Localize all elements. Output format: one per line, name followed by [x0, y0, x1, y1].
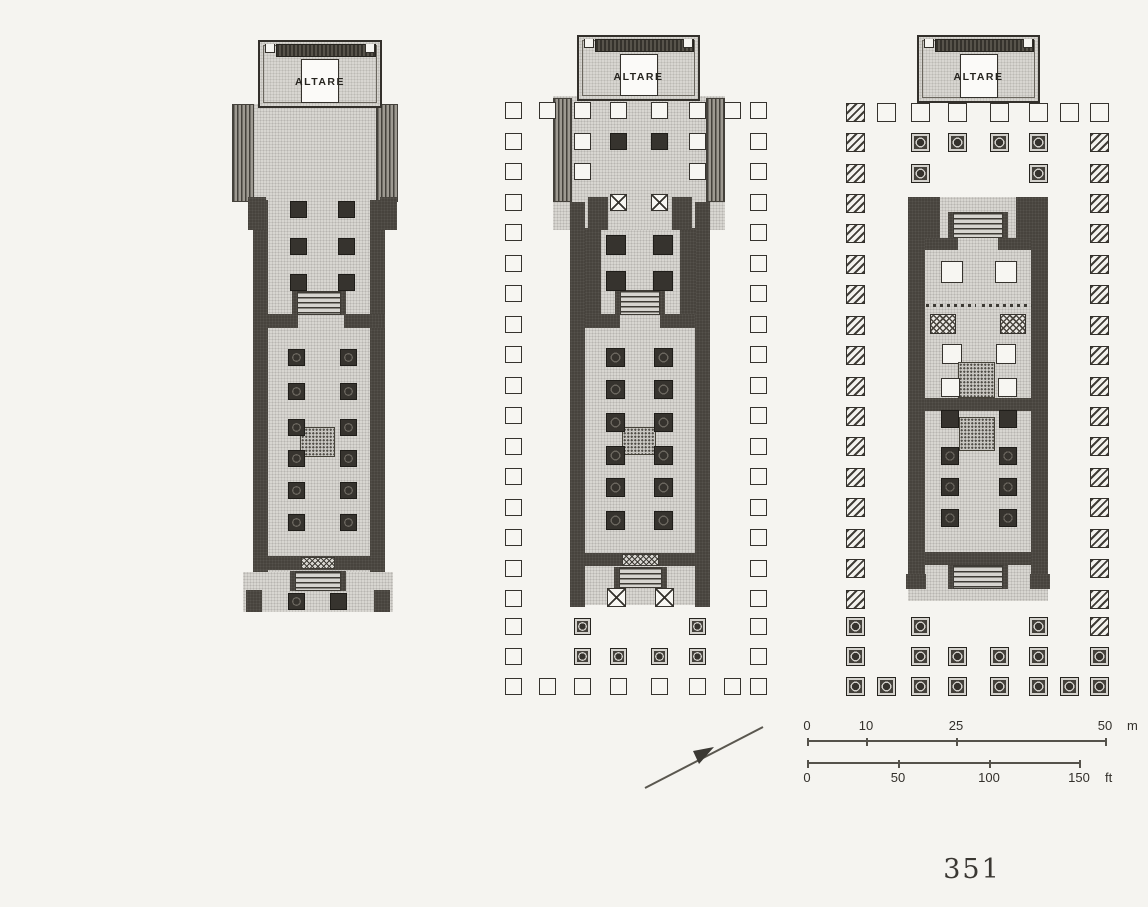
column-dark-circled: [654, 478, 673, 497]
temple-wall: [1030, 574, 1050, 589]
column-dark-circled: [340, 349, 357, 366]
altar-hatched-band: [276, 44, 376, 57]
peristyle-column-circled: [948, 677, 967, 696]
temple-floor: [232, 104, 398, 202]
peristyle-column-circled: [689, 648, 706, 665]
column-dark-circled: [340, 383, 357, 400]
peristyle-column-hatched: [1090, 224, 1109, 243]
peristyle-column-circled: [911, 647, 930, 666]
scale-meters-tick-label: 10: [859, 718, 873, 733]
temple-wall: [344, 314, 385, 328]
column-dark-circled: [340, 419, 357, 436]
altar-notch: [584, 39, 594, 48]
column-dark-circled: [340, 514, 357, 531]
temple-wall: [672, 197, 692, 230]
column-dark-circled: [999, 478, 1017, 496]
peristyle-column-circled: [689, 618, 706, 635]
peristyle-column-hatched: [846, 285, 865, 304]
column-open: [990, 103, 1009, 122]
altar-notch: [265, 44, 275, 53]
column-open: [505, 560, 522, 577]
column-dark-circled: [288, 383, 305, 400]
column-open: [689, 678, 706, 695]
column-x: [651, 194, 668, 211]
column-open: [1029, 103, 1048, 122]
peristyle-column-circled: [990, 133, 1009, 152]
peristyle-column-circled: [1029, 164, 1048, 183]
temple-wall: [248, 197, 266, 230]
peristyle-column-hatched: [1090, 529, 1109, 548]
altar: ALTARE: [577, 35, 700, 101]
altar-label: ALTARE: [919, 70, 1038, 85]
column-dark-circled: [340, 482, 357, 499]
scale-meters-tick: [866, 738, 868, 746]
peristyle-column-hatched: [846, 498, 865, 517]
peristyle-column-hatched: [846, 559, 865, 578]
column-open: [574, 102, 591, 119]
column-dark-circled: [288, 450, 305, 467]
column-open: [750, 529, 767, 546]
temple-wall: [908, 197, 940, 239]
peristyle-column-circled: [990, 647, 1009, 666]
scale-feet-tick: [989, 760, 991, 768]
temple-wall: [370, 200, 385, 572]
column-dark-circled: [654, 511, 673, 530]
column-dark: [290, 274, 307, 291]
column-open: [505, 194, 522, 211]
peristyle-column-hatched: [1090, 164, 1109, 183]
peristyle-column-circled: [1060, 677, 1079, 696]
stairs: [619, 567, 662, 588]
peristyle-column-circled: [1029, 647, 1048, 666]
scale-meters-tick-label: 25: [949, 718, 963, 733]
peristyle-column-hatched: [846, 133, 865, 152]
column-dark-circled: [606, 413, 625, 432]
temple-wall: [1003, 212, 1008, 238]
peristyle-column-hatched: [1090, 407, 1109, 426]
column-dark: [290, 201, 307, 218]
column-open: [505, 590, 522, 607]
column-open: [750, 648, 767, 665]
column-open: [505, 133, 522, 150]
column-open: [505, 102, 522, 119]
scale-meters-tick-label: 50: [1098, 718, 1112, 733]
column-open: [505, 346, 522, 363]
altar: ALTARE: [258, 40, 382, 108]
column-dark: [606, 271, 626, 291]
column-open: [610, 102, 627, 119]
column-open: [750, 560, 767, 577]
dashed-line: [982, 304, 1032, 307]
column-dark-circled: [288, 349, 305, 366]
temple-wall: [948, 565, 953, 589]
temple-wall: [695, 202, 710, 607]
column-open: [750, 316, 767, 333]
peristyle-column-circled: [990, 677, 1009, 696]
scale-feet-tick: [898, 760, 900, 768]
column-open: [539, 678, 556, 695]
column-dark-circled: [340, 450, 357, 467]
temple-wall: [585, 228, 601, 314]
temple-wall: [948, 212, 953, 238]
peristyle-column-circled: [610, 648, 627, 665]
column-crosshatched: [930, 314, 956, 334]
column-open: [1060, 103, 1079, 122]
peristyle-column-hatched: [1090, 316, 1109, 335]
peristyle-column-circled: [911, 677, 930, 696]
peristyle-column-hatched: [1090, 590, 1109, 609]
column-dark-circled: [288, 419, 305, 436]
temple-wall: [1031, 197, 1048, 587]
temple-wall: [246, 590, 262, 612]
peristyle-column-hatched: [846, 437, 865, 456]
scale-meters-tick: [807, 738, 809, 746]
hearth: [958, 362, 995, 398]
peristyle-column-circled: [574, 618, 591, 635]
column-dark: [610, 133, 627, 150]
column-crosshatched: [1000, 314, 1026, 334]
column-open: [877, 103, 896, 122]
column-open: [750, 499, 767, 516]
column-dark-circled: [606, 511, 625, 530]
column-open: [574, 678, 591, 695]
column-dark-circled: [941, 509, 959, 527]
column-open: [942, 344, 962, 364]
scale-feet-line: [807, 762, 1079, 764]
column-open: [996, 344, 1016, 364]
column-open: [689, 163, 706, 180]
peristyle-column-circled: [1090, 647, 1109, 666]
peristyle-column-circled: [948, 133, 967, 152]
column-open: [505, 618, 522, 635]
altar: ALTARE: [917, 35, 1040, 103]
column-dark-circled: [288, 514, 305, 531]
hearth: [300, 427, 335, 457]
peristyle-column-circled: [1090, 677, 1109, 696]
dashed-line: [926, 304, 976, 307]
peristyle-column-circled: [1029, 677, 1048, 696]
peristyle-column-hatched: [1090, 559, 1109, 578]
column-dark-circled: [288, 482, 305, 499]
column-dark-circled: [606, 380, 625, 399]
temple-wall: [570, 202, 585, 607]
column-open: [505, 163, 522, 180]
column-dark-circled: [606, 478, 625, 497]
column-open: [995, 261, 1017, 283]
column-open: [941, 378, 960, 397]
column-dark-circled: [606, 446, 625, 465]
stairs: [620, 290, 660, 315]
peristyle-column-circled: [911, 617, 930, 636]
column-open: [750, 678, 767, 695]
peristyle-column-hatched: [846, 194, 865, 213]
column-x: [655, 588, 674, 607]
peristyle-column-hatched: [846, 316, 865, 335]
peristyle-column-hatched: [1090, 468, 1109, 487]
temple-wall: [374, 590, 390, 612]
peristyle-column-hatched: [846, 164, 865, 183]
scale-feet-tick: [807, 760, 809, 768]
temple-wall: [292, 291, 297, 315]
column-open: [574, 163, 591, 180]
peristyle-column-circled: [651, 648, 668, 665]
peristyle-column-circled: [948, 647, 967, 666]
column-open: [948, 103, 967, 122]
column-open: [750, 407, 767, 424]
column-open: [750, 255, 767, 272]
column-dark: [653, 235, 673, 255]
scale-meters-unit-label: m: [1127, 718, 1138, 733]
column-open: [750, 224, 767, 241]
peristyle-column-hatched: [1090, 437, 1109, 456]
column-open: [505, 224, 522, 241]
column-open: [750, 590, 767, 607]
temple-floor: [253, 200, 385, 572]
column-dark: [338, 274, 355, 291]
column-open: [505, 316, 522, 333]
column-open: [610, 678, 627, 695]
column-open: [750, 438, 767, 455]
threshold-crosshatch: [622, 554, 659, 566]
altar-hatched-band: [935, 39, 1034, 52]
temple-wall: [662, 567, 667, 588]
column-dark-circled: [999, 447, 1017, 465]
column-open: [750, 377, 767, 394]
column-dark: [338, 238, 355, 255]
peristyle-column-circled: [846, 617, 865, 636]
column-open: [574, 133, 591, 150]
temple-wall: [341, 291, 346, 315]
altar-notch: [1023, 39, 1033, 48]
temple-wall: [906, 574, 926, 589]
column-open: [651, 102, 668, 119]
column-dark: [941, 410, 959, 428]
peristyle-column-hatched: [1090, 346, 1109, 365]
peristyle-column-hatched: [846, 468, 865, 487]
column-open: [750, 618, 767, 635]
peristyle-column-hatched: [1090, 377, 1109, 396]
temple-wall: [1003, 565, 1008, 589]
peristyle-column-circled: [846, 647, 865, 666]
column-dark: [330, 593, 347, 610]
temple-wall: [1016, 197, 1048, 239]
hatched-pier: [376, 104, 398, 202]
threshold-crosshatch: [301, 557, 335, 569]
column-open: [505, 499, 522, 516]
peristyle-column-hatched: [846, 255, 865, 274]
temple-wall: [253, 200, 268, 572]
peristyle-column-hatched: [846, 590, 865, 609]
scale-meters-tick-label: 0: [803, 718, 810, 733]
peristyle-column-hatched: [846, 103, 865, 122]
column-x: [610, 194, 627, 211]
scale-feet-tick-label: 50: [891, 770, 905, 785]
peristyle-column-hatched: [1090, 133, 1109, 152]
column-open: [750, 102, 767, 119]
hatched-pier: [232, 104, 254, 202]
temple-wall: [588, 197, 608, 230]
column-open: [724, 102, 741, 119]
column-open: [750, 346, 767, 363]
column-dark: [653, 271, 673, 291]
column-open: [941, 261, 963, 283]
column-dark-circled: [606, 348, 625, 367]
peristyle-column-hatched: [846, 346, 865, 365]
scale-feet-tick-label: 100: [978, 770, 1000, 785]
temple-wall: [660, 290, 665, 315]
column-dark-circled: [941, 447, 959, 465]
stairs: [953, 565, 1003, 589]
altar-notch: [924, 39, 934, 48]
column-dark-circled: [941, 478, 959, 496]
temple-wall: [341, 571, 346, 591]
scale-feet-tick-label: 150: [1068, 770, 1090, 785]
peristyle-column-hatched: [846, 529, 865, 548]
column-open: [505, 438, 522, 455]
column-open: [651, 678, 668, 695]
peristyle-column-hatched: [1090, 498, 1109, 517]
temple-wall: [615, 290, 620, 315]
peristyle-column-circled: [574, 648, 591, 665]
temple-wall: [925, 238, 958, 250]
temple-wall: [680, 228, 696, 314]
column-open: [505, 468, 522, 485]
stairs: [297, 291, 341, 315]
scale-meters-tick: [1105, 738, 1107, 746]
page-number: 351: [940, 854, 1004, 885]
hatched-pier: [706, 98, 725, 202]
column-dark-circled: [654, 348, 673, 367]
peristyle-column-circled: [846, 677, 865, 696]
column-dark: [999, 410, 1017, 428]
column-open: [1090, 103, 1109, 122]
peristyle-column-hatched: [1090, 285, 1109, 304]
temple-wall: [660, 314, 695, 328]
stairs: [953, 212, 1003, 238]
temple-wall: [585, 314, 620, 328]
peristyle-column-hatched: [1090, 255, 1109, 274]
column-open: [750, 194, 767, 211]
column-open: [750, 285, 767, 302]
temple-wall: [253, 314, 298, 328]
column-open: [539, 102, 556, 119]
peristyle-column-circled: [1029, 133, 1048, 152]
column-open: [911, 103, 930, 122]
peristyle-column-hatched: [1090, 194, 1109, 213]
column-open: [750, 468, 767, 485]
peristyle-column-hatched: [1090, 617, 1109, 636]
altar-label: ALTARE: [260, 75, 380, 90]
peristyle-column-circled: [911, 133, 930, 152]
temple-wall: [925, 552, 1031, 565]
column-open: [505, 377, 522, 394]
column-open: [750, 133, 767, 150]
peristyle-column-circled: [1029, 617, 1048, 636]
column-open: [505, 648, 522, 665]
temple-wall: [614, 567, 619, 588]
column-dark-circled: [999, 509, 1017, 527]
column-open: [689, 102, 706, 119]
column-dark-circled: [288, 593, 305, 610]
peristyle-column-hatched: [846, 224, 865, 243]
column-open: [505, 529, 522, 546]
hearth: [959, 417, 995, 451]
stairs: [295, 571, 341, 591]
peristyle-column-hatched: [846, 407, 865, 426]
scanned-page: ALTAREALTAREALTARE 0102550m050100150ft 3…: [0, 0, 1148, 907]
column-dark-circled: [654, 380, 673, 399]
column-open: [689, 133, 706, 150]
temple-wall: [908, 197, 925, 587]
altar-notch: [365, 44, 375, 53]
temple-wall: [998, 238, 1031, 250]
temple-wall: [290, 571, 295, 591]
column-dark: [606, 235, 626, 255]
column-dark-circled: [654, 413, 673, 432]
column-open: [505, 255, 522, 272]
column-dark: [290, 238, 307, 255]
column-dark: [651, 133, 668, 150]
column-open: [505, 678, 522, 695]
column-open: [750, 163, 767, 180]
altar-notch: [683, 39, 693, 48]
altar-hatched-band: [595, 39, 694, 52]
column-open: [998, 378, 1017, 397]
scale-feet-unit-label: ft: [1105, 770, 1112, 785]
scale-feet-tick: [1079, 760, 1081, 768]
hearth: [622, 427, 656, 455]
column-open: [505, 407, 522, 424]
column-dark-circled: [654, 446, 673, 465]
peristyle-column-circled: [877, 677, 896, 696]
peristyle-column-hatched: [846, 377, 865, 396]
column-dark: [338, 201, 355, 218]
altar-label: ALTARE: [579, 70, 698, 85]
scale-meters-tick: [956, 738, 958, 746]
peristyle-column-circled: [911, 164, 930, 183]
temple-wall: [380, 197, 397, 230]
north-arrow: [630, 715, 775, 805]
column-open: [724, 678, 741, 695]
column-x: [607, 588, 626, 607]
scale-feet-tick-label: 0: [803, 770, 810, 785]
column-open: [505, 285, 522, 302]
